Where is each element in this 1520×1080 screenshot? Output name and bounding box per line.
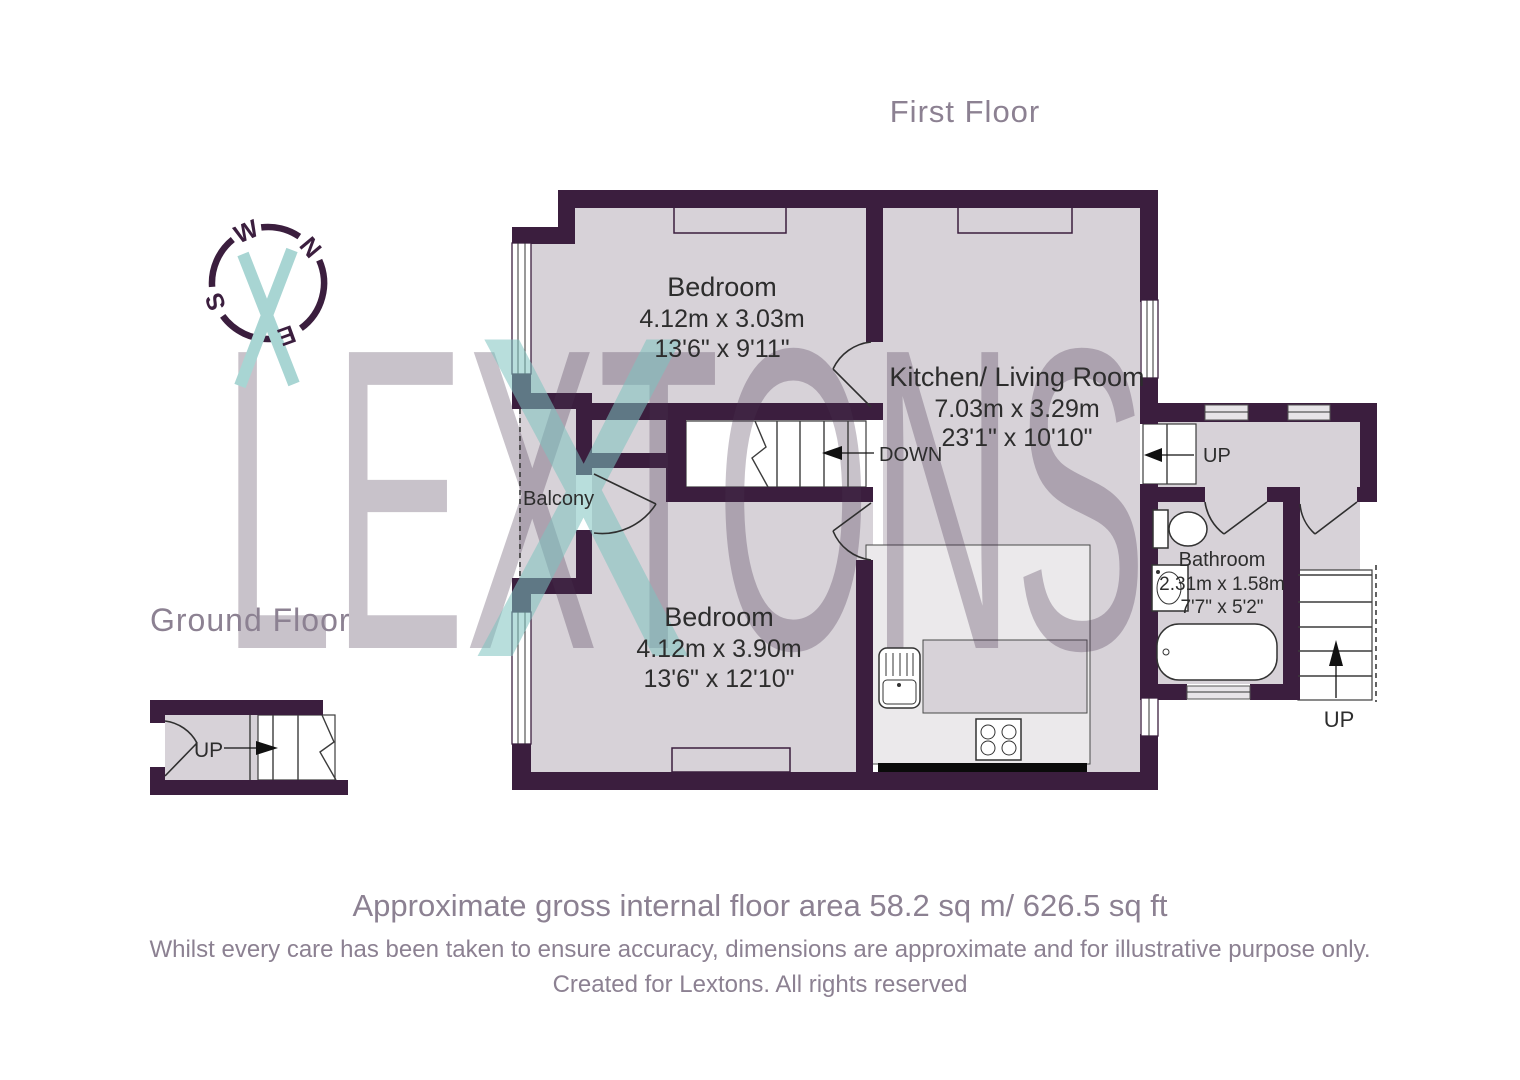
bathroom-imperial: 7'7" x 5'2" [1180, 597, 1263, 618]
bedroom-back-metric: 4.12m x 3.90m [636, 635, 801, 663]
window-hall-left [1205, 405, 1248, 420]
ground-floor-title: Ground Floor [150, 602, 360, 639]
kitchen-living-name: Kitchen/ Living Room [889, 362, 1144, 392]
doorway-bathroom [1205, 487, 1267, 502]
floorplan-page: LEXTONS X [0, 0, 1520, 1080]
down-label: DOWN [879, 444, 942, 466]
ground-up-label: UP [194, 739, 223, 762]
kitchen-hob [976, 719, 1021, 760]
hall-up-label: UP [1203, 445, 1231, 467]
external-up-label: UP [1324, 707, 1355, 732]
bedroom-back-name: Bedroom [664, 602, 774, 632]
footer-disclaimer: Whilst every care has been taken to ensu… [0, 936, 1520, 964]
kitchen-living-metric: 7.03m x 3.29m [934, 395, 1099, 423]
room-landing [1300, 502, 1360, 572]
doorway-landing [1300, 487, 1357, 502]
balcony-label: Balcony [523, 488, 594, 510]
window-hall-right [1288, 405, 1330, 420]
window-bathroom [1187, 686, 1250, 699]
kitchen-sink [879, 648, 920, 708]
footer-area-line: Approximate gross internal floor area 58… [0, 888, 1520, 924]
bathtub [1157, 624, 1277, 680]
bedroom-front-imperial: 13'6" x 9'11" [654, 335, 789, 363]
bedroom-front-metric: 4.12m x 3.03m [639, 305, 804, 333]
footer-credit: Created for Lextons. All rights reserved [0, 971, 1520, 999]
bathroom-metric: 2.31m x 1.58m [1159, 574, 1285, 595]
toilet [1153, 510, 1207, 548]
bedroom-front-name: Bedroom [667, 272, 777, 302]
first-floor-title: First Floor [860, 94, 1070, 130]
bathroom-name: Bathroom [1179, 549, 1266, 571]
compass-west: W [230, 214, 263, 249]
kitchen-living-imperial: 23'1" x 10'10" [941, 424, 1092, 452]
bedroom-back-imperial: 13'6" x 12'10" [643, 665, 794, 693]
stairs-external-box [1298, 570, 1372, 700]
